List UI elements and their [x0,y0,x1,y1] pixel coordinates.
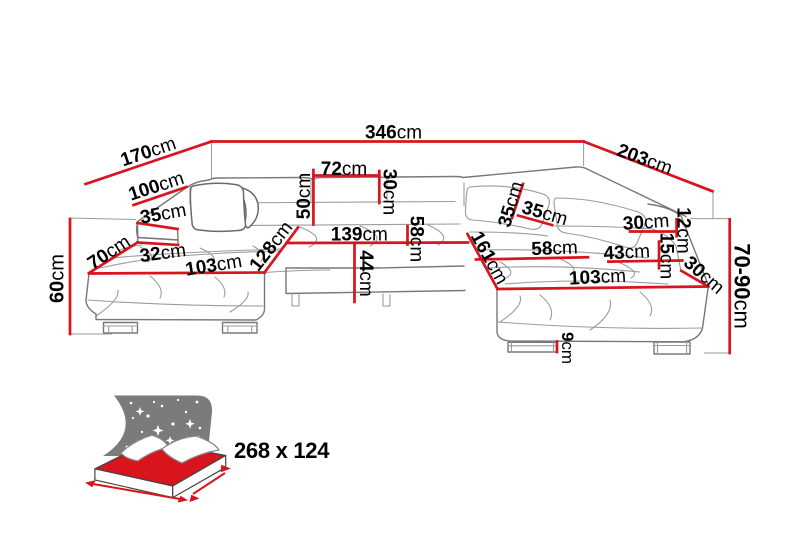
svg-text:70-90cm: 70-90cm [730,243,755,329]
svg-text:268 x 124: 268 x 124 [234,438,330,463]
svg-text:50cm: 50cm [294,173,315,219]
svg-text:30cm: 30cm [379,169,400,215]
svg-text:15cm: 15cm [656,233,677,279]
svg-text:44cm: 44cm [355,250,376,296]
svg-text:30cm: 30cm [622,211,670,235]
svg-text:58cm: 58cm [406,216,427,262]
svg-text:103cm: 103cm [569,266,627,290]
svg-text:60cm: 60cm [47,254,69,303]
svg-text:72cm: 72cm [321,159,367,180]
svg-text:58cm: 58cm [531,237,578,260]
svg-text:43cm: 43cm [603,241,651,264]
svg-text:346cm: 346cm [365,122,422,143]
svg-text:139cm: 139cm [331,225,388,246]
svg-text:9cm: 9cm [558,332,577,364]
